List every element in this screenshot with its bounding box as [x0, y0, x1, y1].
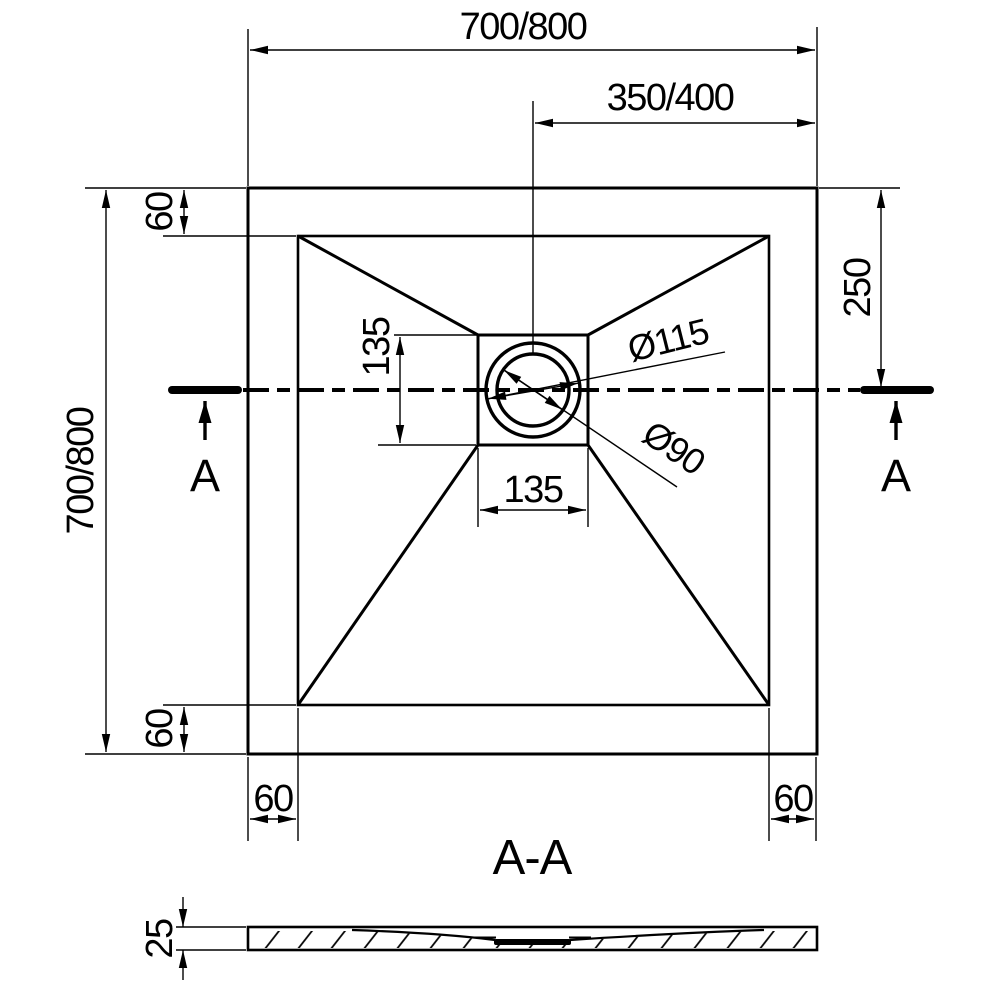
- dim-drain-width: 135: [478, 448, 588, 527]
- section-title: A-A: [493, 831, 573, 885]
- dim-half-width: 350/400: [535, 77, 815, 123]
- dim-rim-bottom-left-label: 60: [253, 778, 293, 820]
- section-cut-marker-left: A: [172, 390, 238, 501]
- dim-rim-bottom-right-label: 60: [773, 778, 813, 820]
- section-marker-right-label: A: [881, 450, 911, 501]
- dim-overall-width-label: 700/800: [460, 6, 587, 48]
- dim-rim-top-label: 60: [139, 192, 181, 232]
- dim-flange-diameter-label: Ø115: [624, 310, 713, 369]
- section-marker-left-label: A: [190, 450, 220, 501]
- dim-center-offset-label: 250: [837, 258, 879, 317]
- dim-half-width-label: 350/400: [607, 77, 734, 119]
- floor-slope-edge-bottom-left: [298, 445, 478, 705]
- dim-drain-height: 135: [356, 317, 476, 445]
- dim-rim-bottom-right: 60: [769, 708, 816, 841]
- dim-thickness: 25: [139, 897, 246, 980]
- dim-rim-bottom-left: 60: [248, 708, 298, 841]
- floor-slope-edge-bottom-right: [588, 445, 769, 705]
- dim-thickness-label: 25: [139, 919, 181, 959]
- technical-drawing: A A 700/800 350/400 700/800: [0, 0, 1000, 1000]
- plan-view: A A 700/800 350/400 700/800: [60, 6, 930, 841]
- drawing-canvas: A A 700/800 350/400 700/800: [0, 0, 1000, 1000]
- drain-cover-plate: [494, 939, 571, 945]
- dim-overall-height-label: 700/800: [60, 407, 102, 534]
- section-cut-marker-right: A: [864, 390, 930, 501]
- dim-drain-height-label: 135: [356, 317, 398, 376]
- dim-rim-bottom-label: 60: [139, 709, 181, 749]
- dim-drain-diameter-label: Ø90: [636, 412, 713, 482]
- section-view: A-A 25: [139, 831, 817, 980]
- dim-drain-width-label: 135: [504, 469, 563, 511]
- dim-center-offset: 250: [819, 188, 900, 387]
- dim-rim-top: 60: [139, 190, 296, 236]
- dim-rim-bottom: 60: [139, 705, 296, 752]
